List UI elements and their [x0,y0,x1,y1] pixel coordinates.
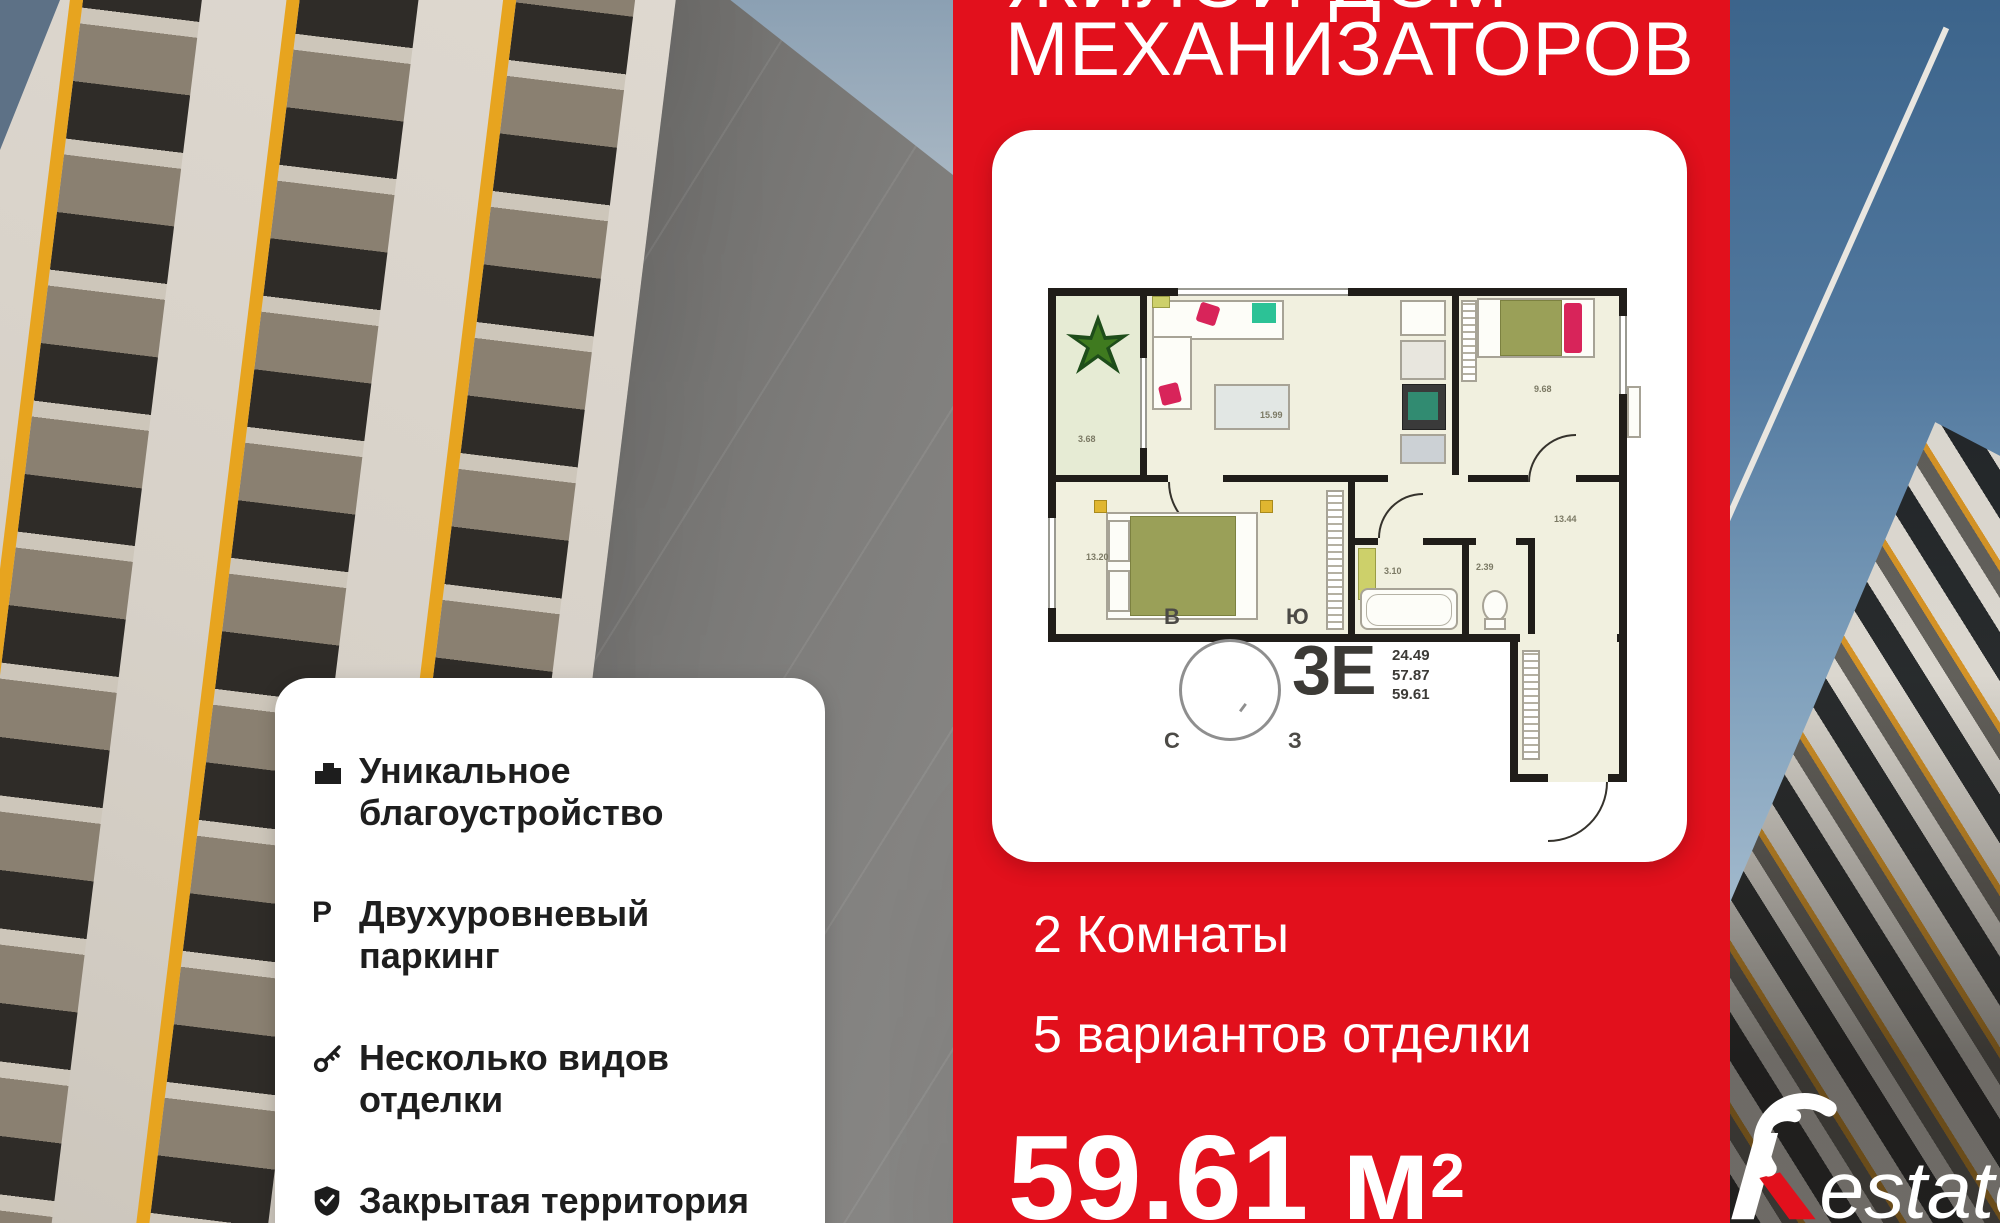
restate-logo-graphic: estate [1690,1088,2000,1223]
complex-title-line2: МЕХАНИЗАТОРОВ [1005,6,1695,93]
bed-pillow-white [1108,520,1130,562]
feature-label: Уникальное благоустройство [359,750,789,835]
usable-area-sum: 57.87 [1392,666,1430,686]
sink [1400,434,1446,464]
compass [1179,639,1281,741]
cooktop [1408,392,1438,420]
plant-icon [1064,312,1132,380]
master-window [1048,518,1056,608]
square-superscript: 2 [1430,1142,1464,1211]
living-area-sum: 24.49 [1392,646,1430,666]
fridge [1400,300,1446,336]
master-area-label: 13.20 [1086,552,1109,562]
compass-needle [1182,642,1272,732]
bedroom-small-area-label: 9.68 [1534,384,1552,394]
parking-icon: Р [312,898,346,932]
toilet-tank [1484,618,1506,630]
finishing-options-text: 5 вариантов отделки [1033,1005,1532,1065]
doorway [1476,538,1516,545]
balcony-door-window [1140,358,1147,448]
total-area-text: 59.61 м2 [1008,1118,1465,1223]
bathtub-inner [1366,594,1452,626]
compass-north-label: С [1164,728,1180,754]
wc-hall-wall [1528,545,1535,634]
coffee-table [1214,384,1290,430]
area-breakdown: 24.49 57.87 59.61 [1392,646,1430,705]
living-window [1178,288,1348,296]
wc-area-label: 2.39 [1476,562,1494,572]
key-icon [312,1042,346,1076]
bed-blanket [1500,300,1562,356]
bed-pillow-white [1108,570,1130,612]
nightstand [1094,500,1107,513]
living-area-label: 15.99 [1260,410,1283,420]
doorway [1168,475,1223,482]
feature-label: Несколько видов отделки [359,1037,789,1122]
exterior-unit [1627,386,1641,438]
sofa-cushion [1252,303,1276,323]
entry-door-arc [1548,782,1608,842]
bath-area-label: 3.10 [1384,566,1402,576]
nightstand [1260,500,1273,513]
passage [1388,475,1468,482]
tv-stand [1152,296,1170,308]
shield-icon [312,1185,346,1219]
building-photo-right [1730,0,2000,1223]
bedroom-hall-wall [1348,482,1355,634]
feature-label: Двухуровневый паркинг [359,893,789,978]
promo-banner: Уникальное благоустройство Р Двухуровнев… [0,0,2000,1223]
logo-text: estate [1819,1145,2000,1223]
features-card: Уникальное благоустройство Р Двухуровнев… [275,678,825,1223]
building-icon [312,755,346,789]
logo-wave-inner [1761,1115,1795,1142]
total-area-sum: 59.61 [1392,685,1430,705]
kitchen-bedroom-wall [1452,296,1459,475]
layout-code: 3Е [1292,630,1376,710]
rooms-count-text: 2 Комнаты [1033,905,1289,965]
hall-area-label: 13.44 [1554,514,1577,524]
entry-doorway [1548,774,1608,782]
restate-logo: estate [1690,1088,2000,1223]
hall-wardrobe [1522,650,1540,760]
wardrobe [1326,490,1344,630]
doorway [1378,538,1423,545]
feature-label: Закрытая территория [359,1180,789,1222]
wardrobe [1461,300,1477,382]
compass-east-label: В [1164,604,1180,630]
bed-blanket [1130,516,1236,616]
kitchen-counter [1400,340,1446,380]
logo-r-leg [1759,1172,1815,1219]
balcony-area-label: 3.68 [1078,434,1096,444]
building-edge-highlight [1730,27,1949,523]
floorplan-card: 3.68 15.99 9.68 [992,130,1687,862]
compass-south-label: Ю [1286,604,1309,630]
bath-wc-wall [1462,545,1469,634]
bedroom-window [1619,316,1627,394]
compass-west-label: З [1288,728,1302,754]
bed-pillow [1564,303,1582,353]
